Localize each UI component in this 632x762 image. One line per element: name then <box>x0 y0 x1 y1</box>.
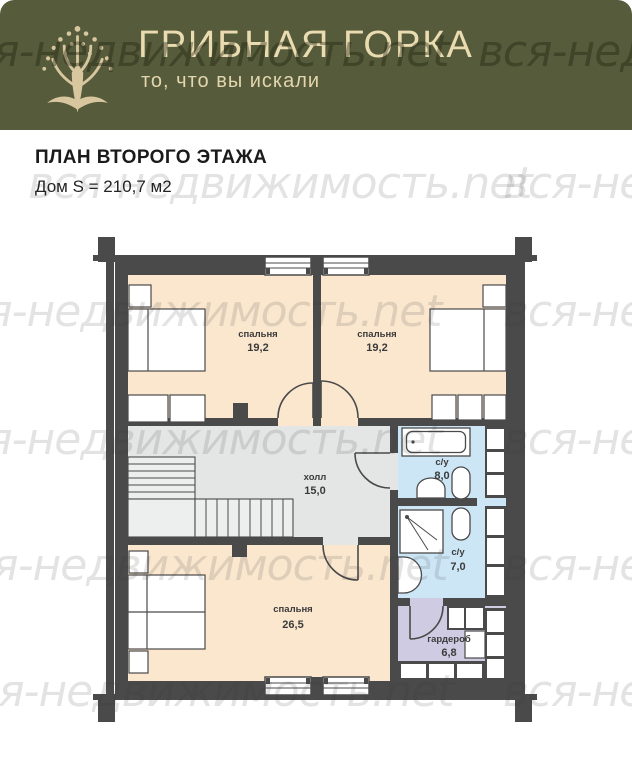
dresser <box>458 395 482 420</box>
wall-closet-shelving <box>485 426 506 681</box>
room-area: 6,8 <box>441 647 456 659</box>
room-area: 19,2 <box>247 342 268 354</box>
room-name: с/у <box>451 547 465 558</box>
window <box>323 257 369 275</box>
brand-header: ГРИБНАЯ ГОРКА то, что вы искали <box>0 0 632 130</box>
room-name: спальня <box>238 329 277 340</box>
dresser <box>432 395 456 420</box>
tree-logo-icon <box>30 14 125 116</box>
room-area: 7,0 <box>450 561 465 573</box>
page: ГРИБНАЯ ГОРКА то, что вы искали ПЛАН ВТО… <box>0 0 632 762</box>
towel-radiator <box>452 467 470 499</box>
dresser <box>170 395 205 422</box>
window <box>265 257 311 275</box>
page-subtitle: Дом S = 210,7 м2 <box>35 177 172 197</box>
page-title: ПЛАН ВТОРОГО ЭТАЖА <box>35 147 267 169</box>
room-name: спальня <box>357 329 396 340</box>
room-area: 15,0 <box>304 485 325 497</box>
room-area: 8,0 <box>434 470 449 482</box>
watermark: вся-недвижимость.net <box>503 158 632 209</box>
window <box>323 677 369 695</box>
brand-tagline: то, что вы искали <box>141 70 320 93</box>
bathtub <box>402 428 470 456</box>
shower <box>400 510 443 553</box>
towel-radiator <box>452 508 470 540</box>
room-area: 26,5 <box>282 619 303 631</box>
room-name: холл <box>304 472 327 483</box>
window <box>265 677 311 695</box>
room-name: с/у <box>435 457 449 468</box>
room-area: 19,2 <box>366 342 387 354</box>
dresser <box>484 395 506 420</box>
room-name: гардероб <box>427 634 471 645</box>
room-name: спальня <box>273 604 312 615</box>
floor-plan: спальня 19,2 спальня 19,2 холл 15,0 с/у … <box>85 237 545 727</box>
brand-title: ГРИБНАЯ ГОРКА <box>138 24 474 67</box>
dresser <box>128 395 168 422</box>
